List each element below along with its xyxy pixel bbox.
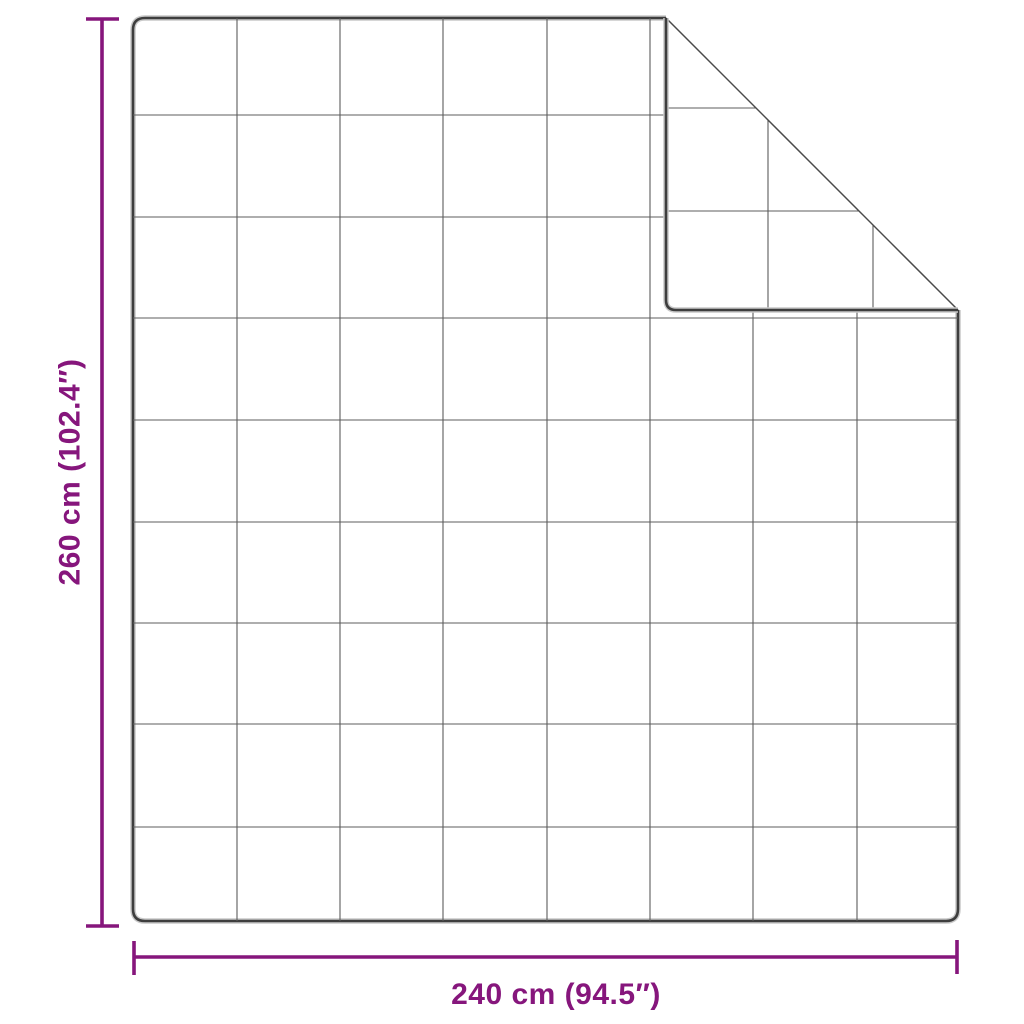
blanket-outline-rim	[133, 18, 958, 921]
fold-crease-line	[666, 18, 958, 310]
blanket-outline	[133, 18, 958, 921]
flap-grid	[666, 108, 873, 310]
horizontal-dimension-label: 240 cm (94.5″)	[451, 978, 661, 1011]
product-dimension-diagram: 260 cm (102.4″) 240 cm (94.5″)	[0, 0, 1024, 1024]
vertical-dimension: 260 cm (102.4″)	[54, 19, 120, 926]
folded-corner-flap	[666, 18, 958, 310]
blanket-diagram-svg: 260 cm (102.4″) 240 cm (94.5″)	[0, 0, 1024, 1024]
horizontal-dimension: 240 cm (94.5″)	[134, 940, 957, 1011]
quilt-grid	[133, 18, 958, 921]
vertical-dimension-label: 260 cm (102.4″)	[54, 358, 87, 585]
blanket-outline-halo	[133, 18, 958, 921]
